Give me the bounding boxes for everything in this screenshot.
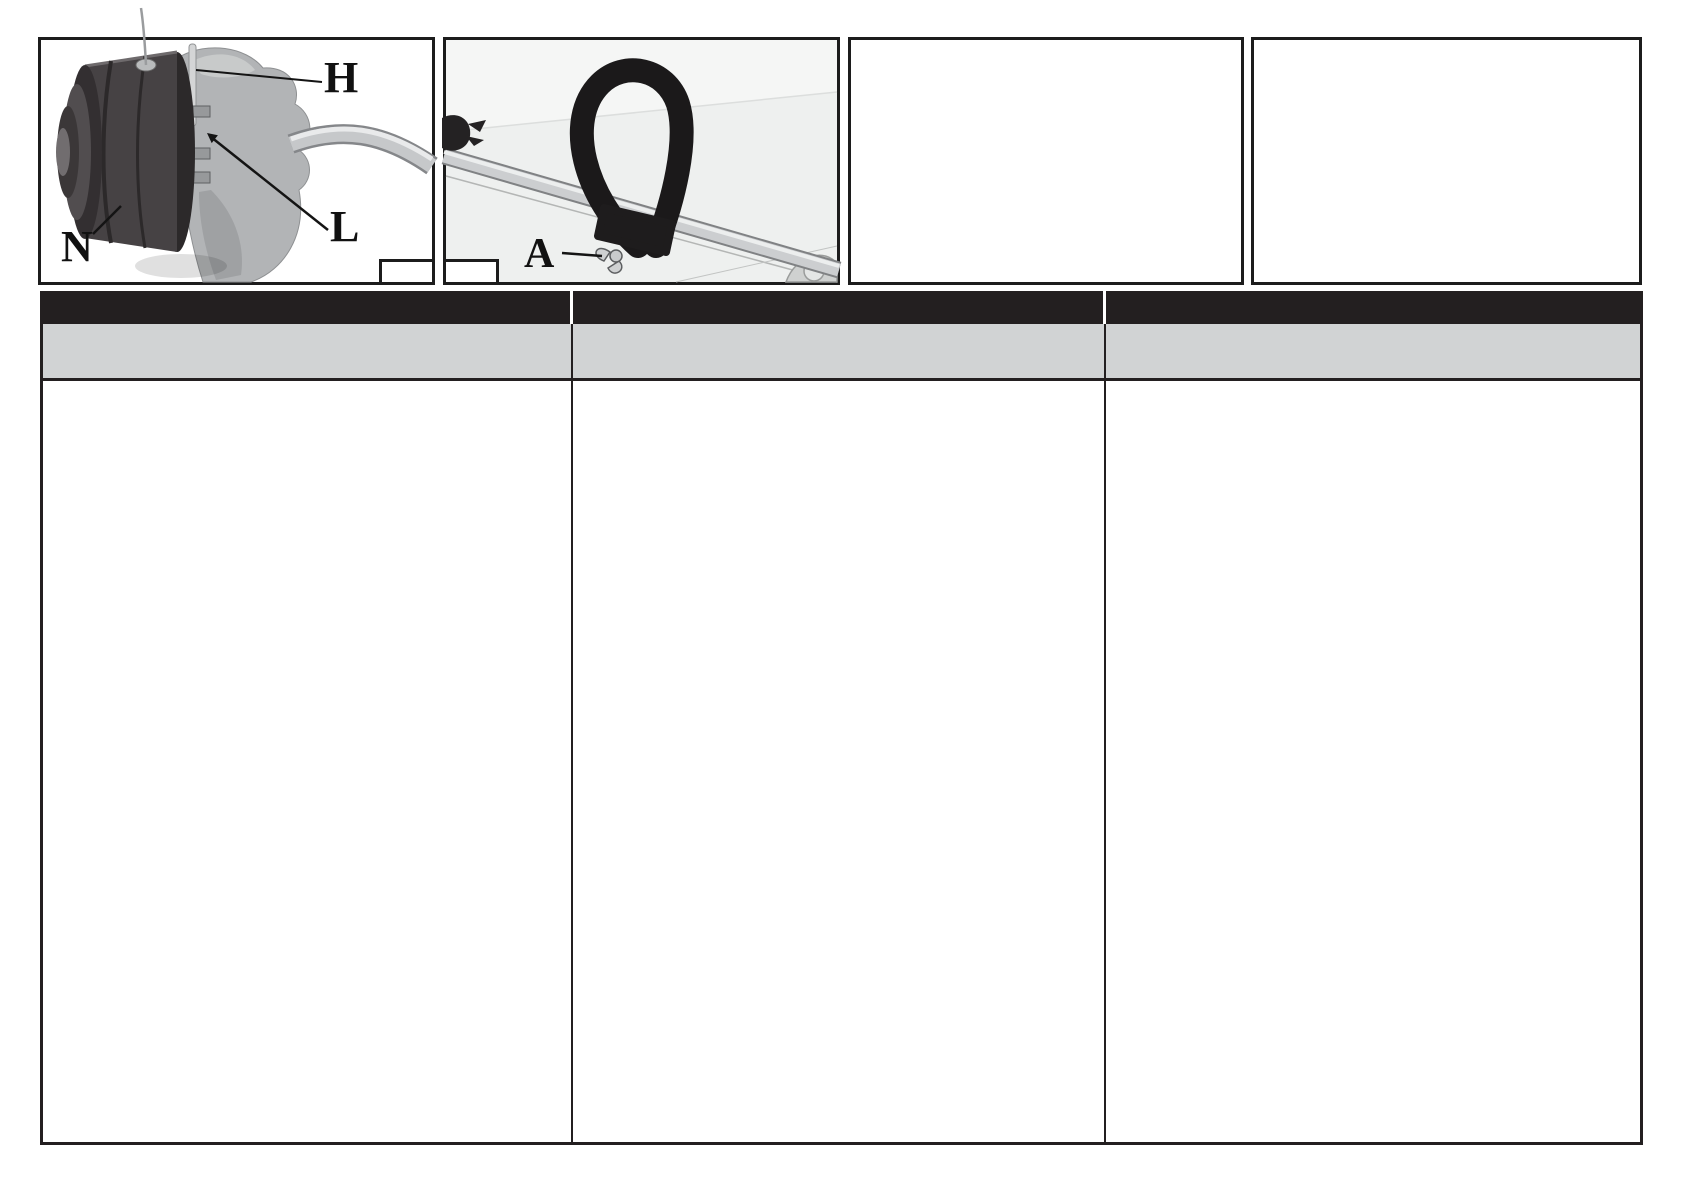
gear-housing xyxy=(177,48,310,282)
spool-shadow xyxy=(135,254,227,278)
table-body-cell-2 xyxy=(573,381,1106,1142)
figure-panel-empty-1 xyxy=(848,37,1244,285)
table-body-cell-3 xyxy=(1106,381,1640,1142)
table-subheader-cell-3 xyxy=(1106,324,1640,378)
table-header-cell-1 xyxy=(40,291,573,324)
trimmer-head-photo xyxy=(41,40,432,282)
table-subheader-cell-2 xyxy=(573,324,1106,378)
table-subheader-row xyxy=(40,324,1643,381)
figure-number-box xyxy=(379,259,435,285)
label-H: H xyxy=(324,56,358,100)
table-header-cell-3 xyxy=(1106,291,1643,324)
label-A: A xyxy=(524,233,554,275)
figure-panel-loop-handle: A xyxy=(443,37,840,285)
figure-number-box xyxy=(443,259,499,285)
table-body-cell-1 xyxy=(43,381,573,1142)
manual-page: H L N xyxy=(0,0,1684,1191)
figure-panel-empty-2 xyxy=(1251,37,1642,285)
table-header-row xyxy=(40,291,1643,324)
content-table xyxy=(40,291,1643,1145)
figure-panel-trimmer-head: H L N xyxy=(38,37,435,285)
label-N: N xyxy=(61,225,93,269)
table-header-cell-2 xyxy=(573,291,1106,324)
table-body-row xyxy=(40,381,1643,1145)
label-L: L xyxy=(330,205,359,249)
loop-handle-photo xyxy=(446,40,837,282)
table-subheader-cell-1 xyxy=(43,324,573,378)
drive-tube xyxy=(291,134,432,166)
